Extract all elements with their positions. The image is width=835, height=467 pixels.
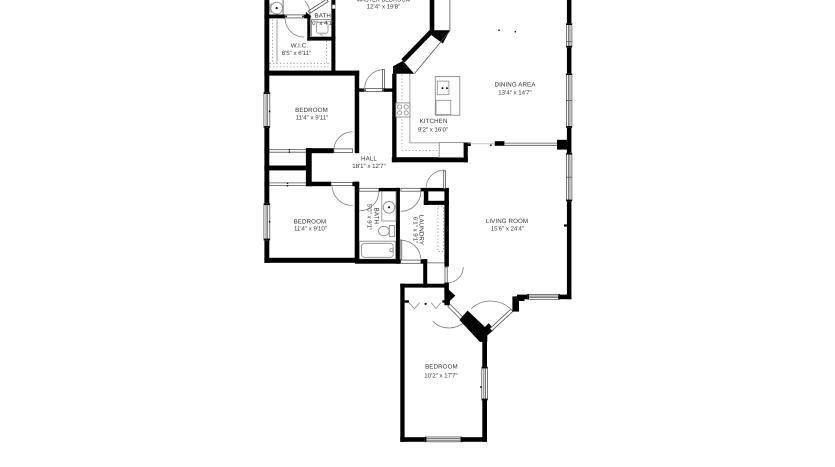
svg-text:18'1" x 12'7": 18'1" x 12'7" [352,163,385,170]
svg-text:9'2" x 16'0": 9'2" x 16'0" [418,127,448,134]
svg-text:W.I.C.: W.I.C. [291,43,309,50]
svg-text:13'4" x 14'7": 13'4" x 14'7" [498,90,531,97]
svg-text:BATH: BATH [372,208,379,224]
svg-text:6'1" x 9'1": 6'1" x 9'1" [411,217,418,244]
svg-text:12'4" x 19'8": 12'4" x 19'8" [367,4,400,11]
svg-text:8'5" x 6'11": 8'5" x 6'11" [282,50,312,57]
svg-text:10'2" x 17'7": 10'2" x 17'7" [424,373,457,380]
svg-text:KITCHEN: KITCHEN [420,118,448,125]
svg-text:BEDROOM: BEDROOM [425,364,458,371]
svg-text:DINING AREA: DINING AREA [495,81,537,88]
svg-text:LIVING ROOM: LIVING ROOM [486,218,528,225]
svg-text:HALL: HALL [361,155,377,162]
svg-text:BEDROOM: BEDROOM [295,107,328,114]
svg-text:11'4" x 9'10": 11'4" x 9'10" [294,226,327,233]
svg-text:BATH: BATH [314,13,330,20]
svg-text:15'6" x 24'4": 15'6" x 24'4" [491,225,524,232]
svg-text:BEDROOM: BEDROOM [294,218,327,225]
svg-text:7'0" x 4'1": 7'0" x 4'1" [308,20,335,27]
svg-text:11'4" x 9'11": 11'4" x 9'11" [296,114,329,121]
svg-text:5'0" x 9'1": 5'0" x 9'1" [365,204,372,231]
